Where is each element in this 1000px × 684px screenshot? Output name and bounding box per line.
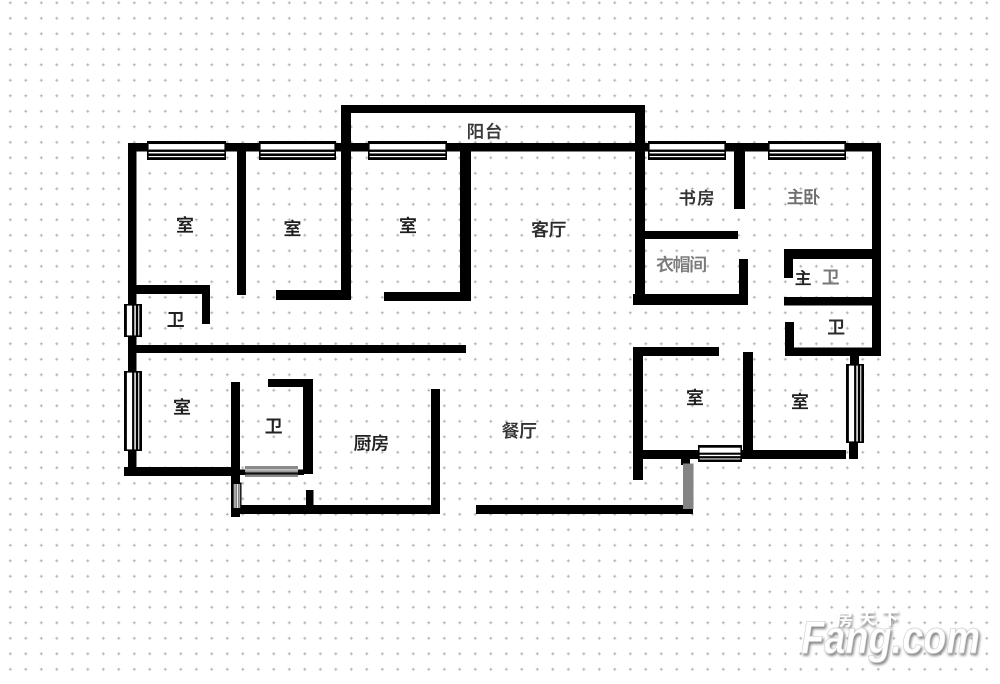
svg-text:Fang.com: Fang.com [801, 611, 980, 663]
